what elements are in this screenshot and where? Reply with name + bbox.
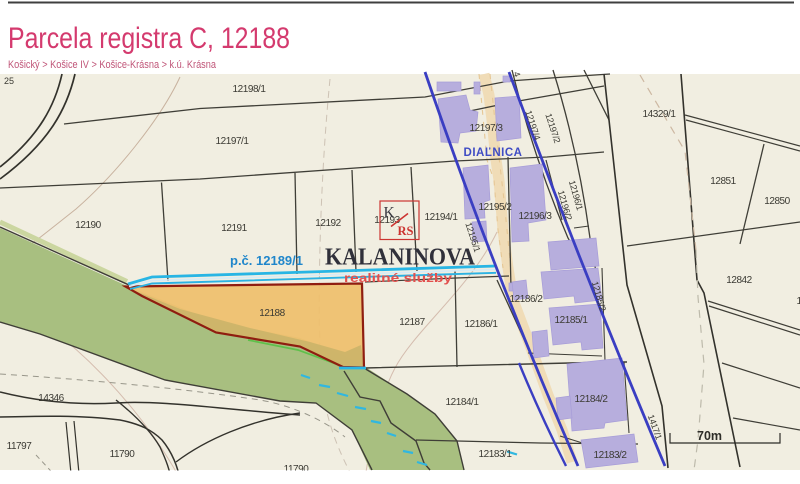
svg-text:12850: 12850 xyxy=(764,196,790,207)
svg-text:12185/1: 12185/1 xyxy=(555,315,589,326)
svg-text:12190: 12190 xyxy=(75,220,101,231)
svg-text:12187: 12187 xyxy=(399,317,425,328)
svg-text:70m: 70m xyxy=(697,429,722,443)
svg-text:K: K xyxy=(384,205,396,222)
svg-text:12191: 12191 xyxy=(221,223,247,234)
svg-text:25: 25 xyxy=(4,76,14,86)
svg-text:12197/1: 12197/1 xyxy=(216,136,250,147)
svg-text:KALANINOVA: KALANINOVA xyxy=(325,245,476,271)
svg-text:12192: 12192 xyxy=(315,218,341,229)
svg-text:14329/1: 14329/1 xyxy=(643,109,677,120)
svg-text:12196/3: 12196/3 xyxy=(519,211,553,222)
svg-text:Košický > Košice IV > Košice-K: Košický > Košice IV > Košice-Krásna > k.… xyxy=(8,59,217,71)
svg-text:Parcela registra C, 12188: Parcela registra C, 12188 xyxy=(8,22,290,55)
svg-text:14346: 14346 xyxy=(38,393,64,404)
svg-text:12188: 12188 xyxy=(259,308,285,319)
svg-text:12183/2: 12183/2 xyxy=(594,450,628,461)
svg-text:realitné služby: realitné služby xyxy=(344,273,453,285)
svg-text:12842: 12842 xyxy=(726,275,752,286)
svg-text:p.č. 12189/1: p.č. 12189/1 xyxy=(230,253,303,268)
svg-text:11790: 11790 xyxy=(110,449,136,460)
svg-text:12198/1: 12198/1 xyxy=(233,84,267,95)
svg-text:12194/1: 12194/1 xyxy=(425,212,459,223)
svg-text:12851: 12851 xyxy=(710,176,736,187)
svg-text:1: 1 xyxy=(796,296,800,307)
svg-text:11797: 11797 xyxy=(7,441,33,452)
svg-text:12183/1: 12183/1 xyxy=(479,449,513,460)
svg-text:DIAĽNICA: DIAĽNICA xyxy=(464,147,523,159)
svg-text:RS: RS xyxy=(398,224,414,238)
svg-text:12195/2: 12195/2 xyxy=(479,202,513,213)
svg-text:12186/2: 12186/2 xyxy=(510,294,544,305)
svg-text:12184/1: 12184/1 xyxy=(446,397,480,408)
svg-text:12197/3: 12197/3 xyxy=(470,123,504,134)
svg-text:12184/2: 12184/2 xyxy=(575,394,609,405)
svg-text:12186/1: 12186/1 xyxy=(465,319,499,330)
